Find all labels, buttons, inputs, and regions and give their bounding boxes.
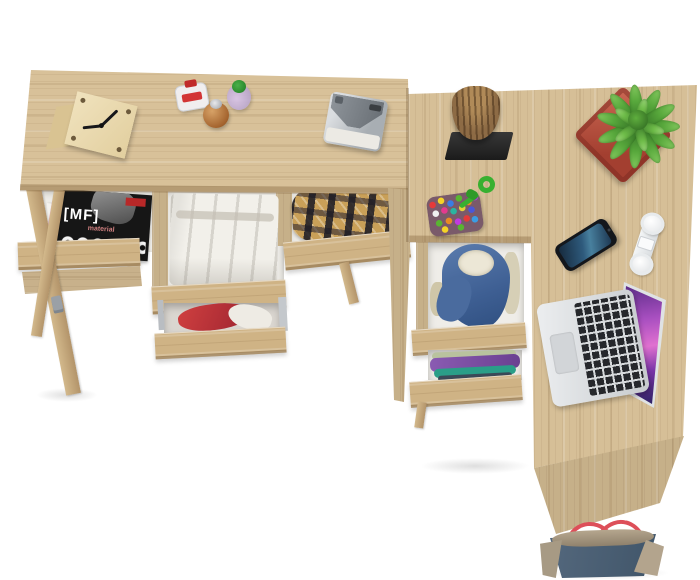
perfume-green-cap	[232, 80, 246, 93]
sherpa-lining	[458, 250, 494, 276]
smartphone-camera-dot	[607, 228, 611, 232]
clock-screw	[116, 147, 122, 153]
support-leg-middle	[339, 261, 359, 304]
drawer-front-red-clothes	[154, 327, 286, 360]
magazine-subtitle: material	[87, 225, 114, 234]
pedestal-shadow	[420, 458, 530, 474]
desk-seam	[406, 88, 409, 242]
plant-center	[628, 110, 648, 130]
magazine-red-box	[125, 198, 146, 207]
magazine-title: [MF]	[63, 205, 100, 224]
perfume-bottle-green	[227, 84, 251, 110]
clock-center	[98, 122, 104, 128]
perfume-bottle-amber	[203, 102, 229, 128]
potted-plant	[590, 72, 686, 168]
perfume-amber-cap	[210, 99, 222, 109]
laptop	[544, 282, 662, 406]
bag-corner-left	[540, 540, 562, 578]
perfume-red-label	[181, 91, 202, 102]
drawer-divider-left	[152, 188, 168, 288]
cube-clock	[50, 86, 146, 162]
clock-face	[64, 91, 137, 158]
clock-screw	[70, 135, 76, 141]
perfume-red-cap	[184, 79, 197, 88]
white-folded-clothes	[169, 193, 279, 287]
product-photo-desk-scene: [MF] material	[0, 0, 700, 580]
laptop-keyboard	[574, 294, 645, 396]
laptop-deck	[536, 288, 651, 407]
clock-screw	[125, 109, 131, 115]
laptop-trackpad	[549, 331, 580, 375]
clock-screw	[80, 97, 86, 103]
tote-bag	[536, 514, 676, 580]
return-front-edge	[409, 235, 531, 243]
camera-button	[335, 96, 344, 104]
instant-camera	[319, 89, 395, 162]
